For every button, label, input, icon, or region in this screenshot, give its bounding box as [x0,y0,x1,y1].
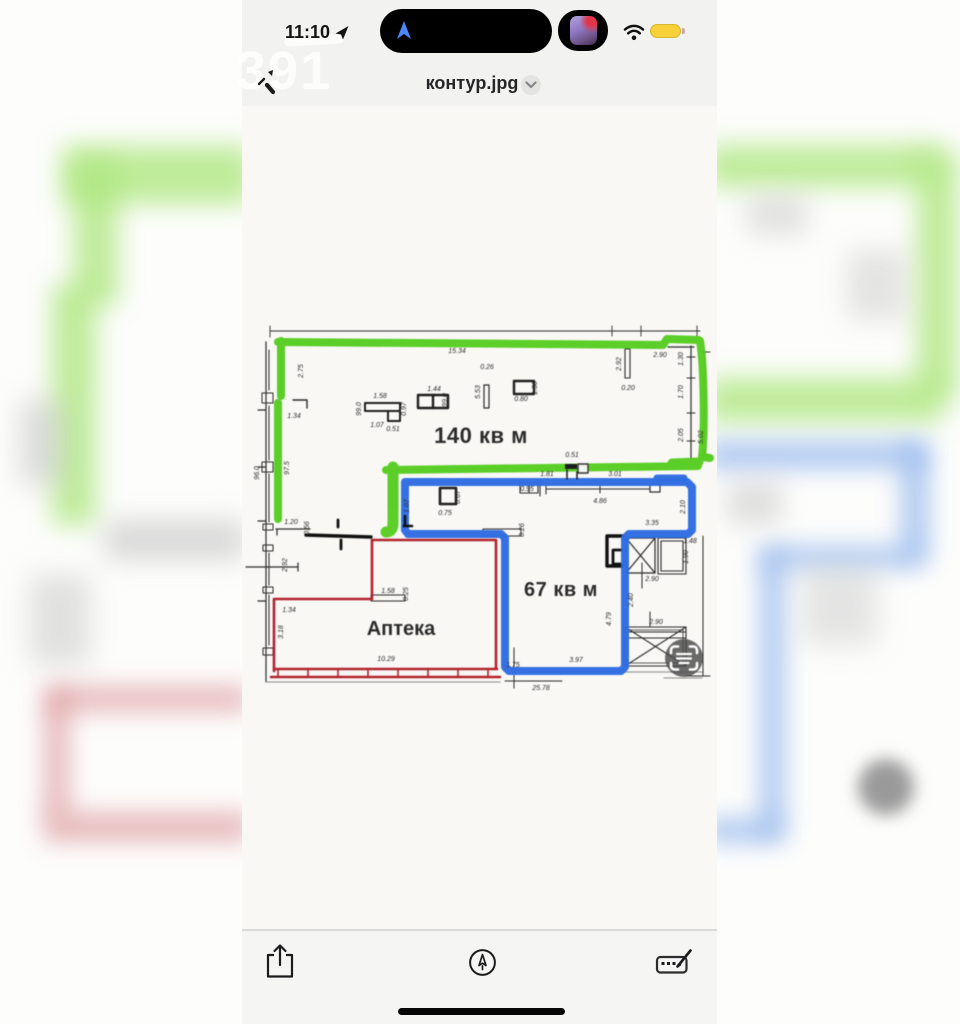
svg-text:67 кв м: 67 кв м [524,579,598,601]
svg-text:0.26: 0.26 [480,364,494,371]
svg-text:0.95: 0.95 [520,486,534,493]
svg-text:3.01: 3.01 [608,471,622,478]
svg-text:3.35: 3.35 [645,520,659,527]
svg-text:1.70: 1.70 [678,385,685,399]
svg-text:99.0: 99.0 [442,393,449,407]
svg-text:0.20: 0.20 [621,385,635,392]
svg-text:1.20: 1.20 [284,519,298,526]
svg-text:0.97: 0.97 [401,401,408,416]
svg-text:15.34: 15.34 [448,348,466,355]
svg-text:2.92: 2.92 [282,558,289,573]
svg-text:1.34: 1.34 [282,607,296,614]
svg-text:25.78: 25.78 [531,685,550,692]
svg-text:2.10: 2.10 [680,500,687,515]
svg-text:1.07: 1.07 [404,498,411,513]
svg-text:2.90: 2.90 [644,576,659,583]
svg-text:1.58: 1.58 [373,393,387,400]
svg-text:0.26: 0.26 [519,523,526,537]
svg-text:0.51: 0.51 [565,452,579,459]
svg-text:2.75: 2.75 [298,364,305,379]
svg-text:10.29: 10.29 [377,656,395,663]
svg-text:2.90: 2.90 [652,352,667,359]
svg-text:2.92: 2.92 [616,357,623,372]
svg-text:0.80: 0.80 [514,396,528,403]
svg-text:0.75: 0.75 [438,510,452,517]
svg-text:1.75: 1.75 [506,662,520,669]
svg-text:4.79: 4.79 [606,612,613,626]
svg-text:1.50: 1.50 [532,381,539,395]
svg-text:2.05: 2.05 [678,428,685,443]
svg-text:1.30: 1.30 [678,352,685,366]
svg-text:3.97: 3.97 [569,657,584,664]
svg-text:96.0: 96.0 [254,466,261,480]
svg-text:1.48: 1.48 [683,538,697,545]
svg-text:1.07: 1.07 [370,422,385,429]
svg-text:2.90: 2.90 [648,619,663,626]
svg-text:97.5: 97.5 [284,461,291,475]
svg-text:0.25: 0.25 [403,587,410,601]
svg-text:140 кв м: 140 кв м [434,423,528,448]
svg-text:0.56: 0.56 [304,521,311,535]
svg-text:1.58: 1.58 [381,588,395,595]
svg-text:4.86: 4.86 [593,498,607,505]
svg-text:99.0: 99.0 [356,402,363,416]
svg-text:Аптека: Аптека [367,618,436,640]
svg-text:1.34: 1.34 [287,413,301,420]
svg-text:5.02: 5.02 [698,430,705,444]
svg-text:2.40: 2.40 [628,593,635,608]
svg-text:1.81: 1.81 [540,471,554,478]
svg-text:0.51: 0.51 [386,426,400,433]
svg-text:5.53: 5.53 [475,385,482,399]
svg-text:0.67: 0.67 [455,489,462,504]
svg-text:1.44: 1.44 [427,386,441,393]
svg-text:3.18: 3.18 [278,625,285,639]
svg-text:1.90: 1.90 [683,550,690,564]
